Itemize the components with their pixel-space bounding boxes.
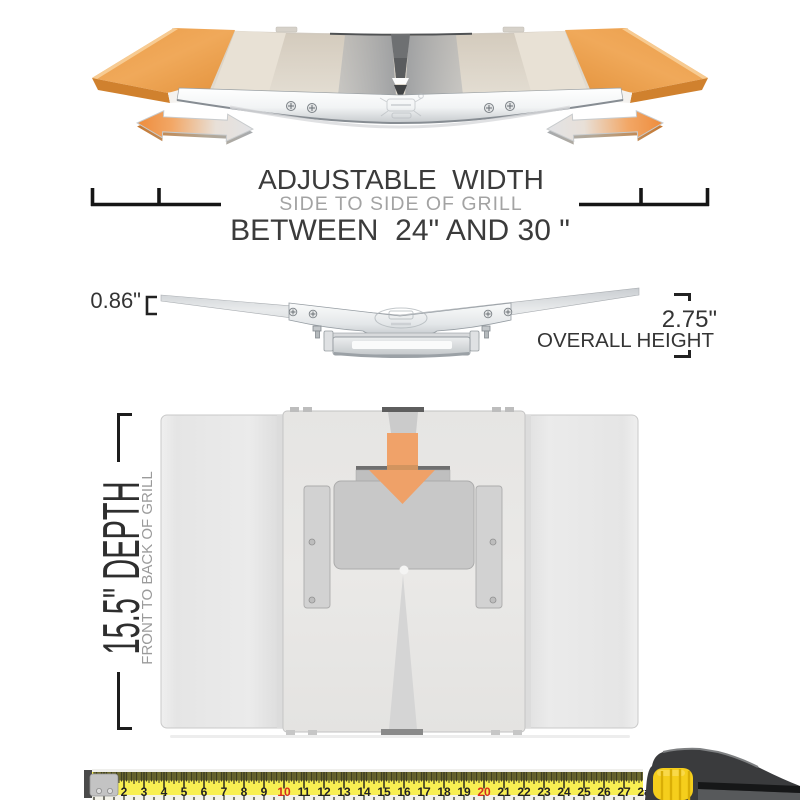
svg-text:11: 11 — [298, 785, 311, 799]
svg-text:10: 10 — [277, 785, 291, 799]
svg-text:9: 9 — [261, 785, 268, 799]
svg-text:25: 25 — [577, 785, 591, 799]
svg-text:17: 17 — [417, 785, 431, 799]
svg-text:24: 24 — [557, 785, 571, 799]
svg-text:OVERALL HEIGHT: OVERALL HEIGHT — [537, 329, 714, 352]
svg-text:19: 19 — [457, 785, 471, 799]
svg-text:14: 14 — [357, 785, 371, 799]
svg-text:FRONT TO BACK OF GRILL: FRONT TO BACK OF GRILL — [139, 471, 156, 664]
svg-text:5: 5 — [181, 785, 188, 799]
svg-text:SIDE TO SIDE OF GRILL: SIDE TO SIDE OF GRILL — [279, 193, 523, 215]
svg-text:ADJUSTABLE WIDTH: ADJUSTABLE WIDTH — [258, 164, 544, 195]
svg-text:13: 13 — [337, 785, 351, 799]
svg-text:27: 27 — [617, 785, 631, 799]
svg-text:2: 2 — [121, 785, 128, 799]
svg-text:21: 21 — [497, 785, 511, 799]
svg-text:18: 18 — [437, 785, 451, 799]
svg-text:16: 16 — [397, 785, 411, 799]
svg-text:12: 12 — [317, 785, 331, 799]
svg-text:BETWEEN 24" AND 30 ": BETWEEN 24" AND 30 " — [230, 214, 570, 247]
svg-text:7: 7 — [221, 785, 228, 799]
svg-text:0.86": 0.86" — [90, 288, 141, 313]
svg-text:22: 22 — [517, 785, 531, 799]
svg-text:26: 26 — [597, 785, 611, 799]
svg-text:3: 3 — [141, 785, 148, 799]
svg-text:15: 15 — [377, 785, 391, 799]
svg-text:20: 20 — [477, 785, 491, 799]
svg-text:8: 8 — [241, 785, 248, 799]
svg-text:6: 6 — [201, 785, 208, 799]
svg-text:23: 23 — [537, 785, 551, 799]
svg-text:4: 4 — [161, 785, 168, 799]
